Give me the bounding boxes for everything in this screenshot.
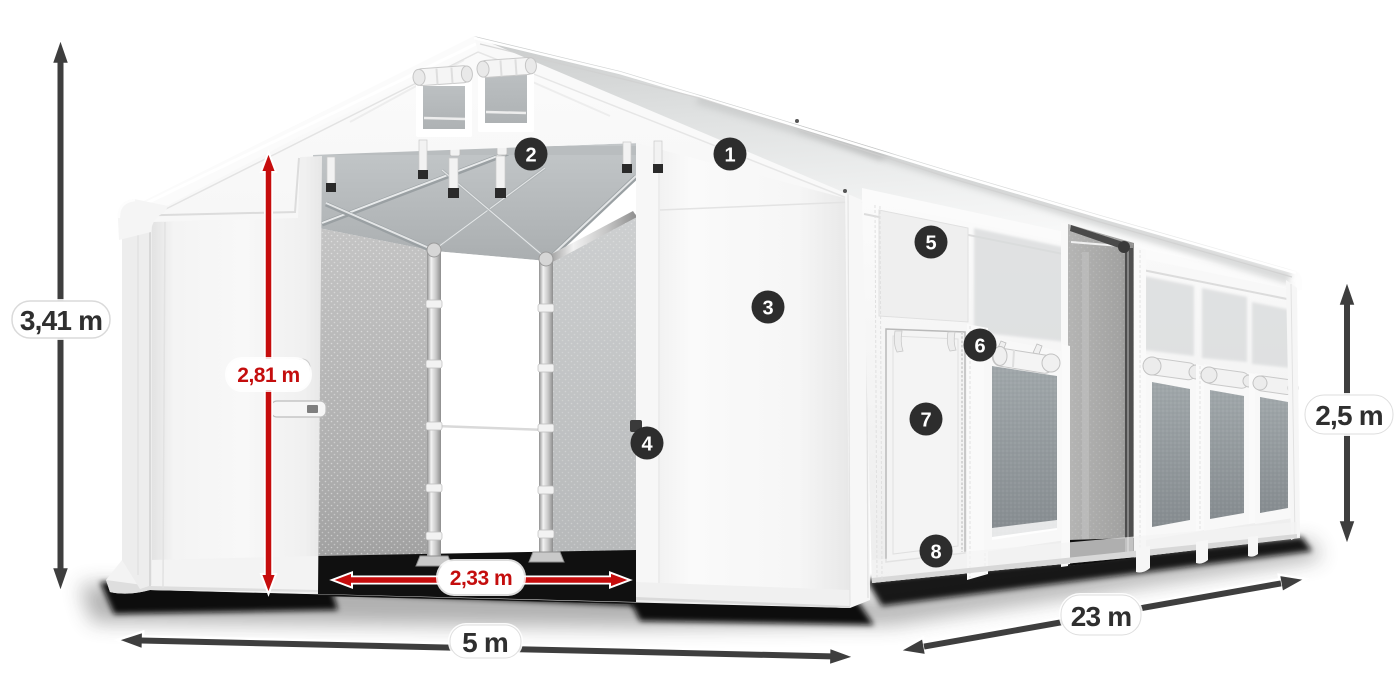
svg-text:2,33 m: 2,33 m bbox=[450, 567, 512, 590]
svg-text:8: 8 bbox=[930, 542, 941, 564]
svg-text:2: 2 bbox=[525, 145, 536, 167]
svg-text:5 m: 5 m bbox=[462, 627, 508, 658]
svg-text:5: 5 bbox=[925, 233, 936, 255]
svg-text:1: 1 bbox=[724, 145, 735, 167]
svg-text:7: 7 bbox=[920, 410, 931, 432]
svg-text:3,41 m: 3,41 m bbox=[20, 305, 102, 336]
svg-text:3: 3 bbox=[762, 298, 773, 320]
svg-text:2,5 m: 2,5 m bbox=[1315, 400, 1383, 431]
svg-text:23 m: 23 m bbox=[1071, 601, 1132, 632]
svg-text:2,81 m: 2,81 m bbox=[237, 364, 299, 387]
svg-text:6: 6 bbox=[974, 336, 985, 358]
svg-text:4: 4 bbox=[641, 434, 653, 456]
